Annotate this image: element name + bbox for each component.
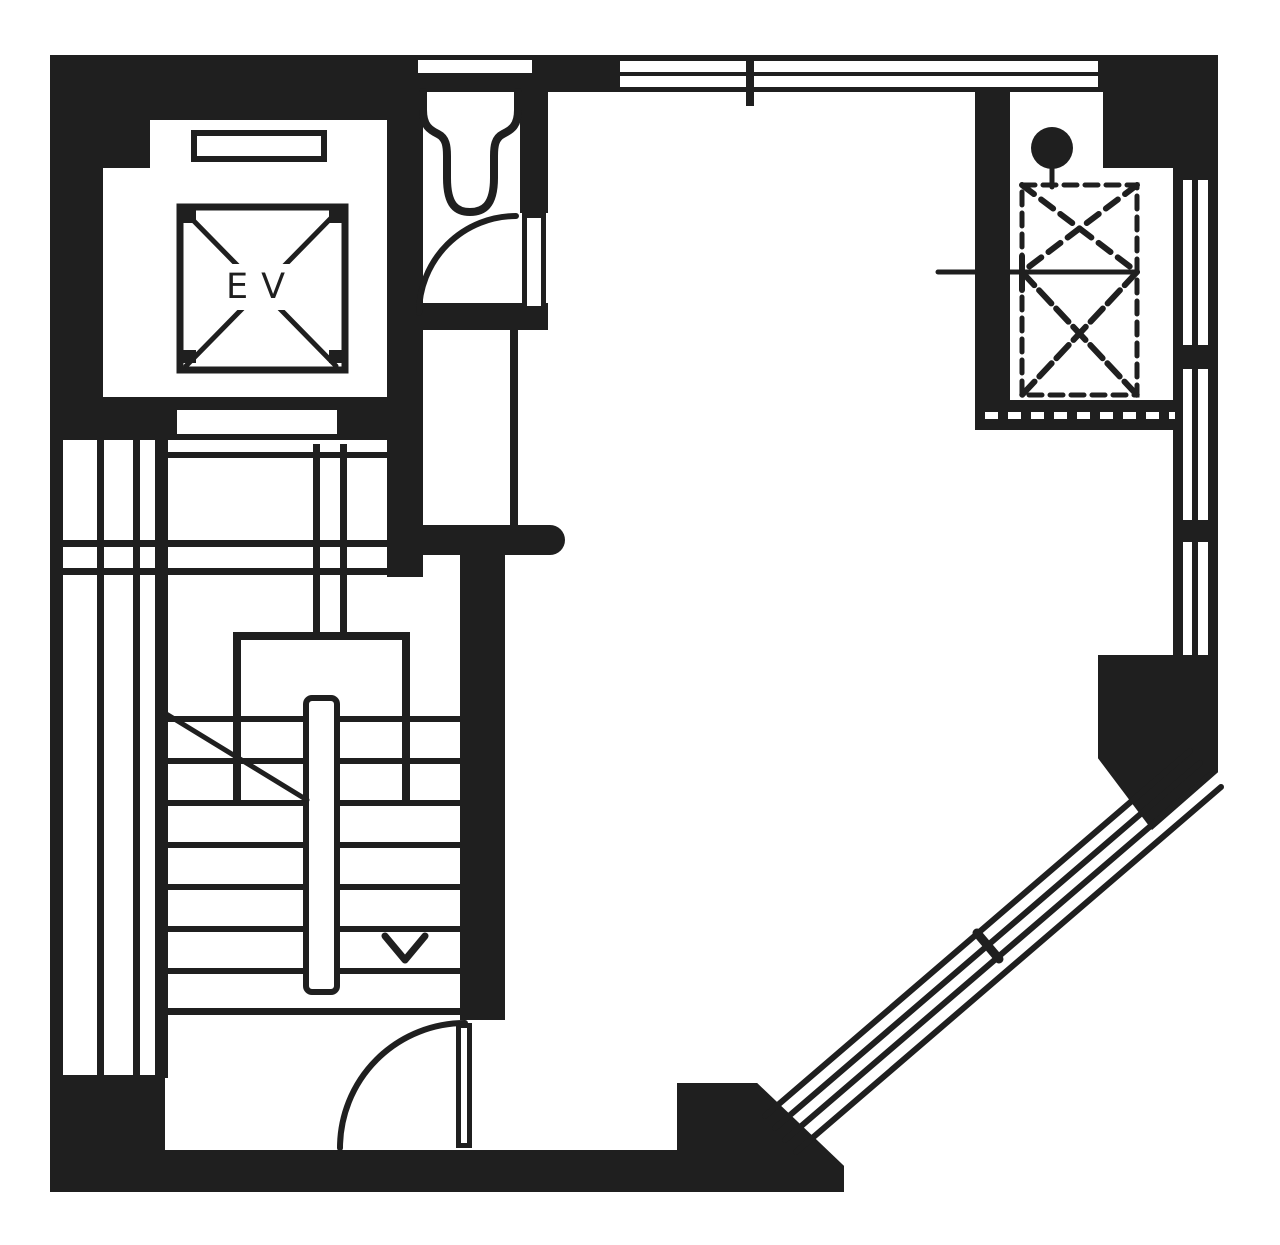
toilet-door-swing-arc — [419, 216, 516, 313]
floor-plan: EV — [0, 0, 1280, 1245]
duct-shaft-symbol — [938, 127, 1137, 395]
elevator-label: EV — [210, 264, 314, 310]
stair-break-line — [163, 712, 307, 800]
plan-linework — [0, 0, 1280, 1245]
down-arrow-icon — [385, 936, 425, 960]
toilet-bowl-icon — [423, 92, 518, 212]
chamfer-window-band — [765, 751, 1221, 1152]
stair-door-swing-arc — [340, 1023, 465, 1148]
riser-pipe-icon — [1031, 127, 1073, 169]
